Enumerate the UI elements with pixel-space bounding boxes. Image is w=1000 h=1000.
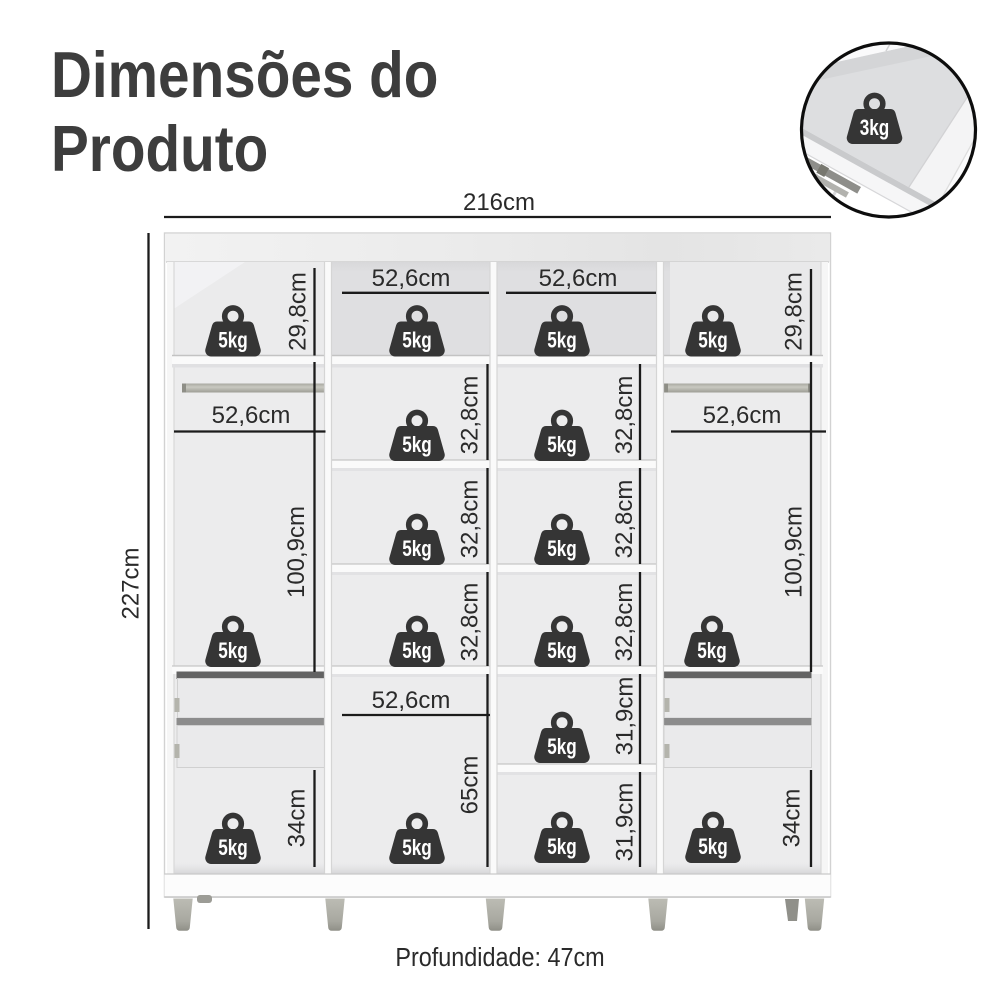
svg-text:31,9cm: 31,9cm [612,677,639,756]
svg-text:32,8cm: 32,8cm [457,376,484,455]
svg-text:5kg: 5kg [547,639,577,664]
svg-text:52,6cm: 52,6cm [372,265,451,292]
svg-text:32,8cm: 32,8cm [611,480,638,559]
svg-text:31,9cm: 31,9cm [612,783,639,862]
svg-text:29,8cm: 29,8cm [285,272,312,351]
svg-text:52,6cm: 52,6cm [212,402,291,429]
svg-text:5kg: 5kg [218,836,248,861]
svg-text:32,8cm: 32,8cm [611,376,638,455]
svg-text:5kg: 5kg [402,639,432,664]
svg-text:Produto: Produto [51,112,268,184]
svg-text:5kg: 5kg [547,735,577,760]
svg-text:52,6cm: 52,6cm [372,687,451,714]
svg-text:5kg: 5kg [698,329,728,354]
svg-text:5kg: 5kg [402,537,432,562]
svg-text:5kg: 5kg [402,836,432,861]
svg-text:5kg: 5kg [547,537,577,562]
svg-text:Dimensões do: Dimensões do [51,38,438,110]
svg-text:5kg: 5kg [698,835,728,860]
svg-text:5kg: 5kg [547,329,577,354]
svg-text:34cm: 34cm [779,789,806,848]
svg-text:100,9cm: 100,9cm [781,506,808,598]
svg-text:32,8cm: 32,8cm [611,583,638,662]
svg-text:5kg: 5kg [697,639,727,664]
svg-text:34cm: 34cm [284,789,311,848]
svg-text:32,8cm: 32,8cm [457,583,484,662]
svg-text:65cm: 65cm [457,756,484,815]
svg-text:5kg: 5kg [402,329,432,354]
svg-text:29,8cm: 29,8cm [781,272,808,351]
svg-text:216cm: 216cm [463,189,535,216]
svg-text:3kg: 3kg [860,116,890,141]
svg-text:5kg: 5kg [547,433,577,458]
svg-text:32,8cm: 32,8cm [457,480,484,559]
svg-text:100,9cm: 100,9cm [283,506,310,598]
svg-text:5kg: 5kg [547,835,577,860]
svg-text:227cm: 227cm [118,547,145,619]
svg-text:5kg: 5kg [218,329,248,354]
svg-text:5kg: 5kg [402,433,432,458]
svg-text:52,6cm: 52,6cm [539,265,618,292]
svg-text:Profundidade: 47cm: Profundidade: 47cm [395,944,604,972]
svg-text:52,6cm: 52,6cm [703,402,782,429]
svg-text:5kg: 5kg [218,639,248,664]
